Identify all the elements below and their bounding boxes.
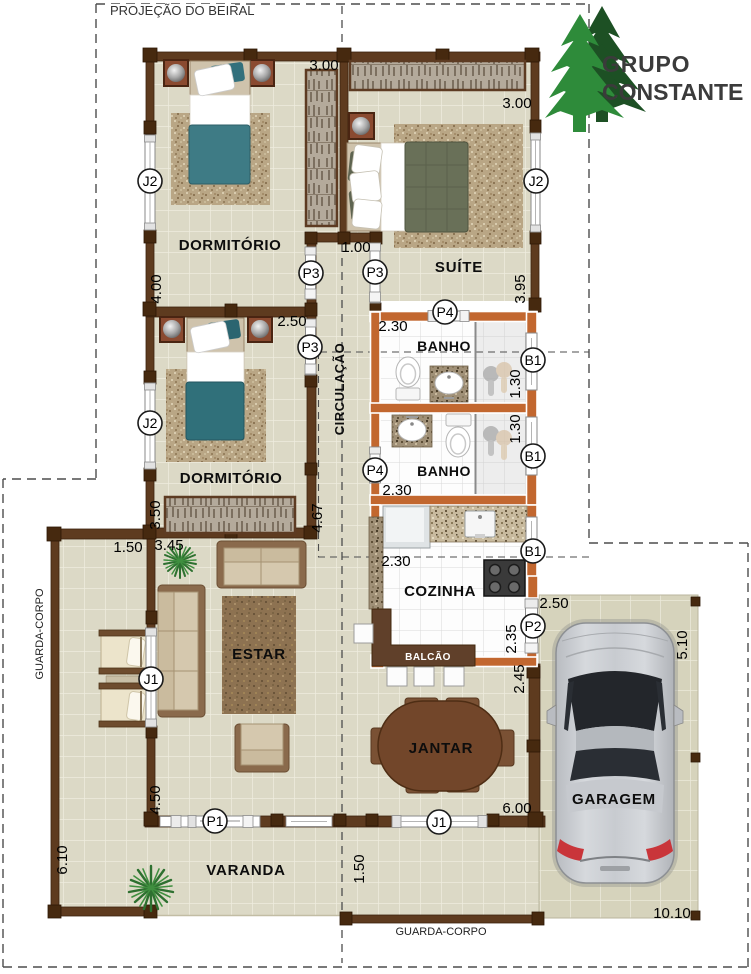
svg-text:P4: P4 xyxy=(436,304,453,320)
svg-text:B1: B1 xyxy=(524,352,541,368)
svg-text:1.30: 1.30 xyxy=(507,369,524,398)
svg-text:2.30: 2.30 xyxy=(382,482,411,499)
svg-text:3.00: 3.00 xyxy=(502,95,531,112)
svg-text:J1: J1 xyxy=(432,814,447,830)
svg-text:B1: B1 xyxy=(524,448,541,464)
svg-text:BANHO: BANHO xyxy=(417,338,471,354)
svg-text:1.50: 1.50 xyxy=(351,854,368,883)
svg-text:J2: J2 xyxy=(529,173,544,189)
svg-text:CIRCULAÇÃO: CIRCULAÇÃO xyxy=(332,343,347,435)
svg-text:J2: J2 xyxy=(143,415,158,431)
svg-text:4.67: 4.67 xyxy=(309,503,326,532)
svg-text:GUARDA-CORPO: GUARDA-CORPO xyxy=(395,926,487,938)
svg-text:2.30: 2.30 xyxy=(378,318,407,335)
svg-text:P1: P1 xyxy=(206,813,223,829)
svg-text:4.50: 4.50 xyxy=(147,785,164,814)
svg-text:6.10: 6.10 xyxy=(54,845,71,874)
svg-text:DORMITÓRIO: DORMITÓRIO xyxy=(180,469,283,487)
svg-text:GUARDA-CORPO: GUARDA-CORPO xyxy=(34,588,46,680)
svg-text:3.45: 3.45 xyxy=(154,537,183,554)
svg-text:3.50: 3.50 xyxy=(147,500,164,529)
svg-text:VARANDA: VARANDA xyxy=(206,862,286,879)
svg-text:J1: J1 xyxy=(144,671,159,687)
svg-text:DORMITÓRIO: DORMITÓRIO xyxy=(179,236,282,254)
svg-text:1.30: 1.30 xyxy=(507,414,524,443)
svg-text:P3: P3 xyxy=(302,265,319,281)
svg-text:P2: P2 xyxy=(524,618,541,634)
svg-text:JANTAR: JANTAR xyxy=(409,740,474,757)
svg-text:5.10: 5.10 xyxy=(674,630,691,659)
svg-text:3.95: 3.95 xyxy=(512,274,529,303)
svg-text:P3: P3 xyxy=(301,339,318,355)
svg-text:GARAGEM: GARAGEM xyxy=(572,791,656,808)
svg-text:2.30: 2.30 xyxy=(381,553,410,570)
svg-text:2.45: 2.45 xyxy=(511,664,528,693)
svg-text:2.50: 2.50 xyxy=(277,313,306,330)
svg-text:J2: J2 xyxy=(143,173,158,189)
svg-text:2.35: 2.35 xyxy=(503,624,520,653)
svg-text:2.50: 2.50 xyxy=(539,595,568,612)
svg-text:3.00: 3.00 xyxy=(309,57,338,74)
svg-text:SUÍTE: SUÍTE xyxy=(435,259,483,276)
svg-text:1.00: 1.00 xyxy=(341,239,370,256)
svg-text:BANHO: BANHO xyxy=(417,463,471,479)
svg-text:1.50: 1.50 xyxy=(113,539,142,556)
svg-text:10.10: 10.10 xyxy=(653,905,691,922)
svg-text:CONSTANTE: CONSTANTE xyxy=(602,79,743,105)
svg-text:COZINHA: COZINHA xyxy=(404,583,476,600)
svg-text:BALCÃO: BALCÃO xyxy=(405,650,451,663)
svg-text:GRUPO: GRUPO xyxy=(602,51,690,77)
svg-text:4.00: 4.00 xyxy=(148,274,165,303)
svg-text:PROJEÇÃO DO BEIRAL: PROJEÇÃO DO BEIRAL xyxy=(110,3,254,18)
svg-text:ESTAR: ESTAR xyxy=(232,646,286,663)
svg-text:P3: P3 xyxy=(366,264,383,280)
svg-text:B1: B1 xyxy=(524,543,541,559)
svg-text:6.00: 6.00 xyxy=(502,800,531,817)
svg-text:P4: P4 xyxy=(366,462,383,478)
